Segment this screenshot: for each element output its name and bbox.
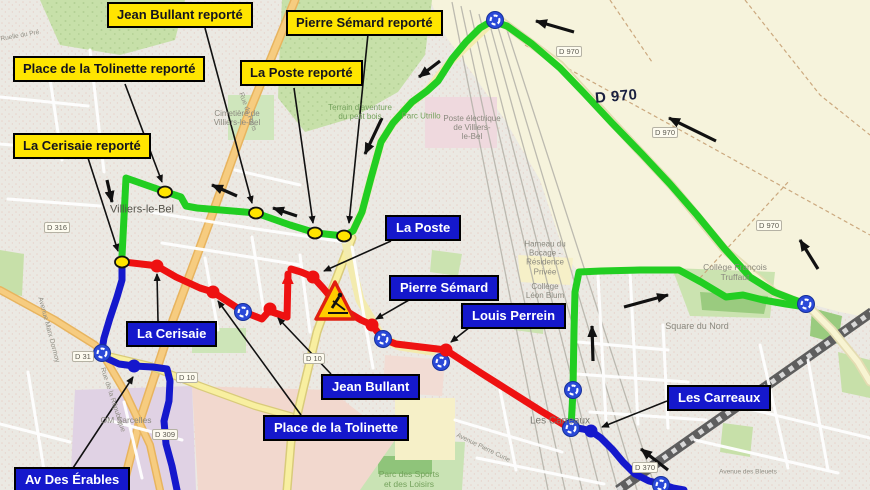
roundabout-icon	[798, 296, 815, 313]
label-pierre-semard: Pierre Sémard	[389, 275, 499, 301]
road-shield-d970-2: D 970	[652, 127, 678, 138]
closed-stop-dot	[207, 286, 220, 299]
relocated-stop-dot	[337, 231, 351, 242]
relocated-stop-dot	[158, 187, 172, 198]
label-av-des-erables: Av Des Érables	[14, 467, 130, 490]
roundabout-icon	[653, 477, 670, 490]
closed-stop-dot	[366, 319, 379, 332]
label-pierre-semard-reporte: Pierre Sémard reporté	[286, 10, 443, 36]
relocated-stop-dot	[249, 208, 263, 219]
label-place-tolinette-reporte: Place de la Tolinette reporté	[13, 56, 205, 82]
label-louis-perrein: Louis Perrein	[461, 303, 566, 329]
label-jean-bullant-reporte: Jean Bullant reporté	[107, 2, 253, 28]
road-shield-d316: D 316	[44, 222, 70, 233]
roundabout-icon	[94, 345, 111, 362]
route-stop-dot	[585, 425, 598, 438]
road-shield-d970-1: D 970	[556, 46, 582, 57]
label-les-carreaux: Les Carreaux	[667, 385, 771, 411]
roundabout-icon	[375, 331, 392, 348]
label-la-poste: La Poste	[385, 215, 461, 241]
closed-stop-dot	[307, 271, 320, 284]
label-jean-bullant: Jean Bullant	[321, 374, 420, 400]
closed-stop-dot	[264, 303, 277, 316]
roundabout-icon	[565, 382, 582, 399]
roundabout-icon	[563, 420, 580, 437]
label-la-cerisaie: La Cerisaie	[126, 321, 217, 347]
road-shield-d10-2: D 10	[303, 353, 325, 364]
road-shield-d309: D 309	[152, 429, 178, 440]
map-canvas: Villiers-le-Bel Cimetière de Villiers-le…	[0, 0, 870, 490]
roundabout-icon	[487, 12, 504, 29]
label-la-poste-reporte: La Poste reporté	[240, 60, 363, 86]
road-shield-d31: D 31	[72, 351, 94, 362]
relocated-stop-dot	[115, 257, 129, 268]
label-place-tolinette: Place de la Tolinette	[263, 415, 409, 441]
road-shield-d970-3: D 970	[756, 220, 782, 231]
road-shield-d370: D 370	[632, 462, 658, 473]
road-shield-d10: D 10	[176, 372, 198, 383]
route-stop-dot	[128, 360, 141, 373]
closed-stop-dot	[151, 260, 164, 273]
roundabout-icon	[235, 304, 252, 321]
label-la-cerisaie-reporte: La Cerisaie reporté	[13, 133, 151, 159]
closed-stop-dot	[440, 344, 453, 357]
relocated-stop-dot	[308, 228, 322, 239]
